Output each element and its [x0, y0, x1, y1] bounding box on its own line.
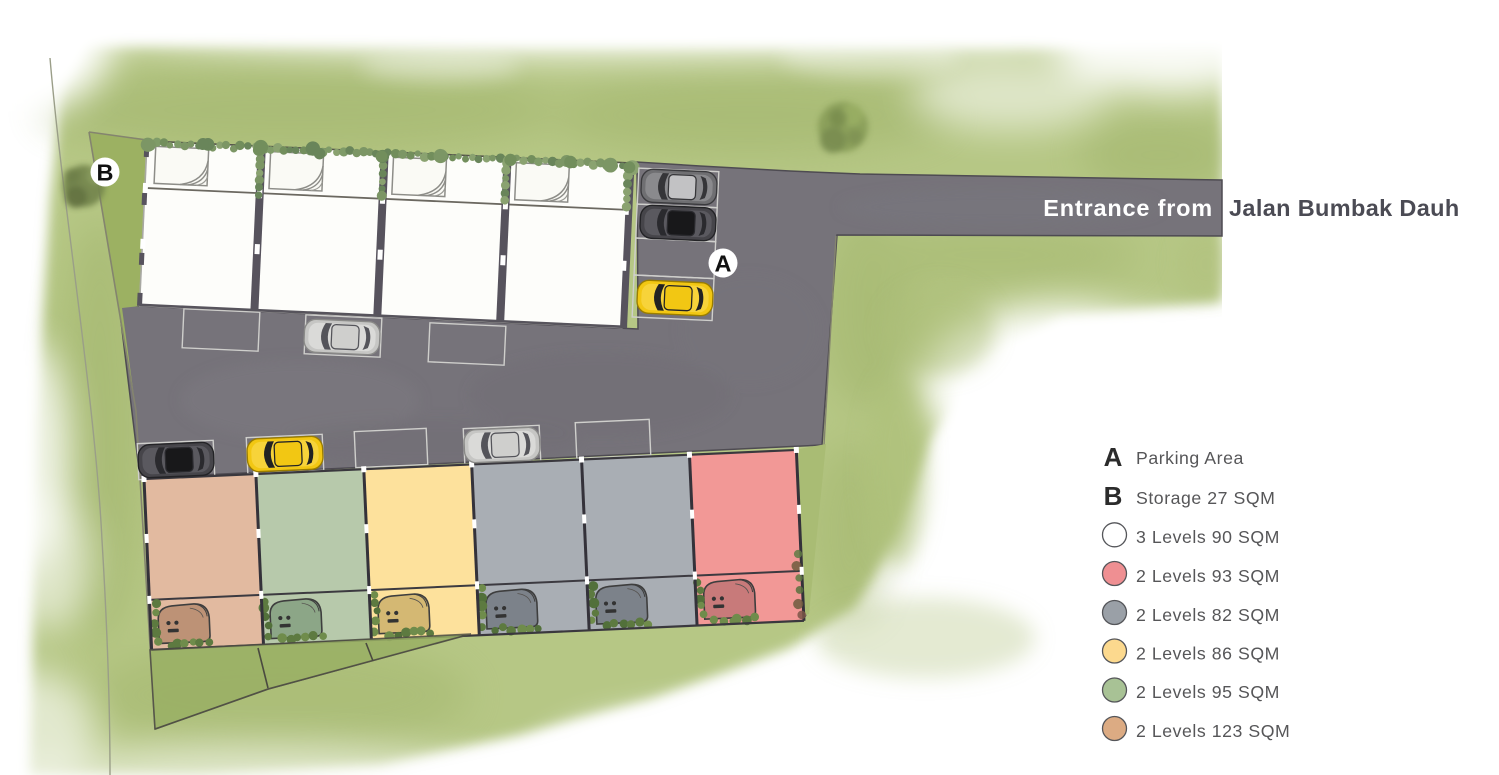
svg-text:B: B — [1104, 481, 1123, 511]
svg-text:3 Levels 90 SQM: 3 Levels 90 SQM — [1136, 527, 1280, 547]
svg-text:Storage 27 SQM: Storage 27 SQM — [1136, 488, 1275, 508]
svg-text:2 Levels 93 SQM: 2 Levels 93 SQM — [1136, 566, 1280, 586]
svg-text:Parking Area: Parking Area — [1136, 448, 1244, 468]
svg-text:2 Levels 123 SQM: 2 Levels 123 SQM — [1136, 721, 1290, 741]
svg-text:B: B — [97, 160, 114, 186]
svg-text:2 Levels 86 SQM: 2 Levels 86 SQM — [1136, 644, 1280, 664]
svg-text:Jalan Bumbak Dauh: Jalan Bumbak Dauh — [1229, 195, 1460, 221]
svg-text:A: A — [715, 251, 732, 277]
svg-text:2 Levels 82 SQM: 2 Levels 82 SQM — [1136, 605, 1280, 625]
svg-text:Entrance from: Entrance from — [1043, 195, 1213, 221]
svg-text:2 Levels 95 SQM: 2 Levels 95 SQM — [1136, 682, 1280, 702]
svg-text:A: A — [1104, 442, 1123, 472]
